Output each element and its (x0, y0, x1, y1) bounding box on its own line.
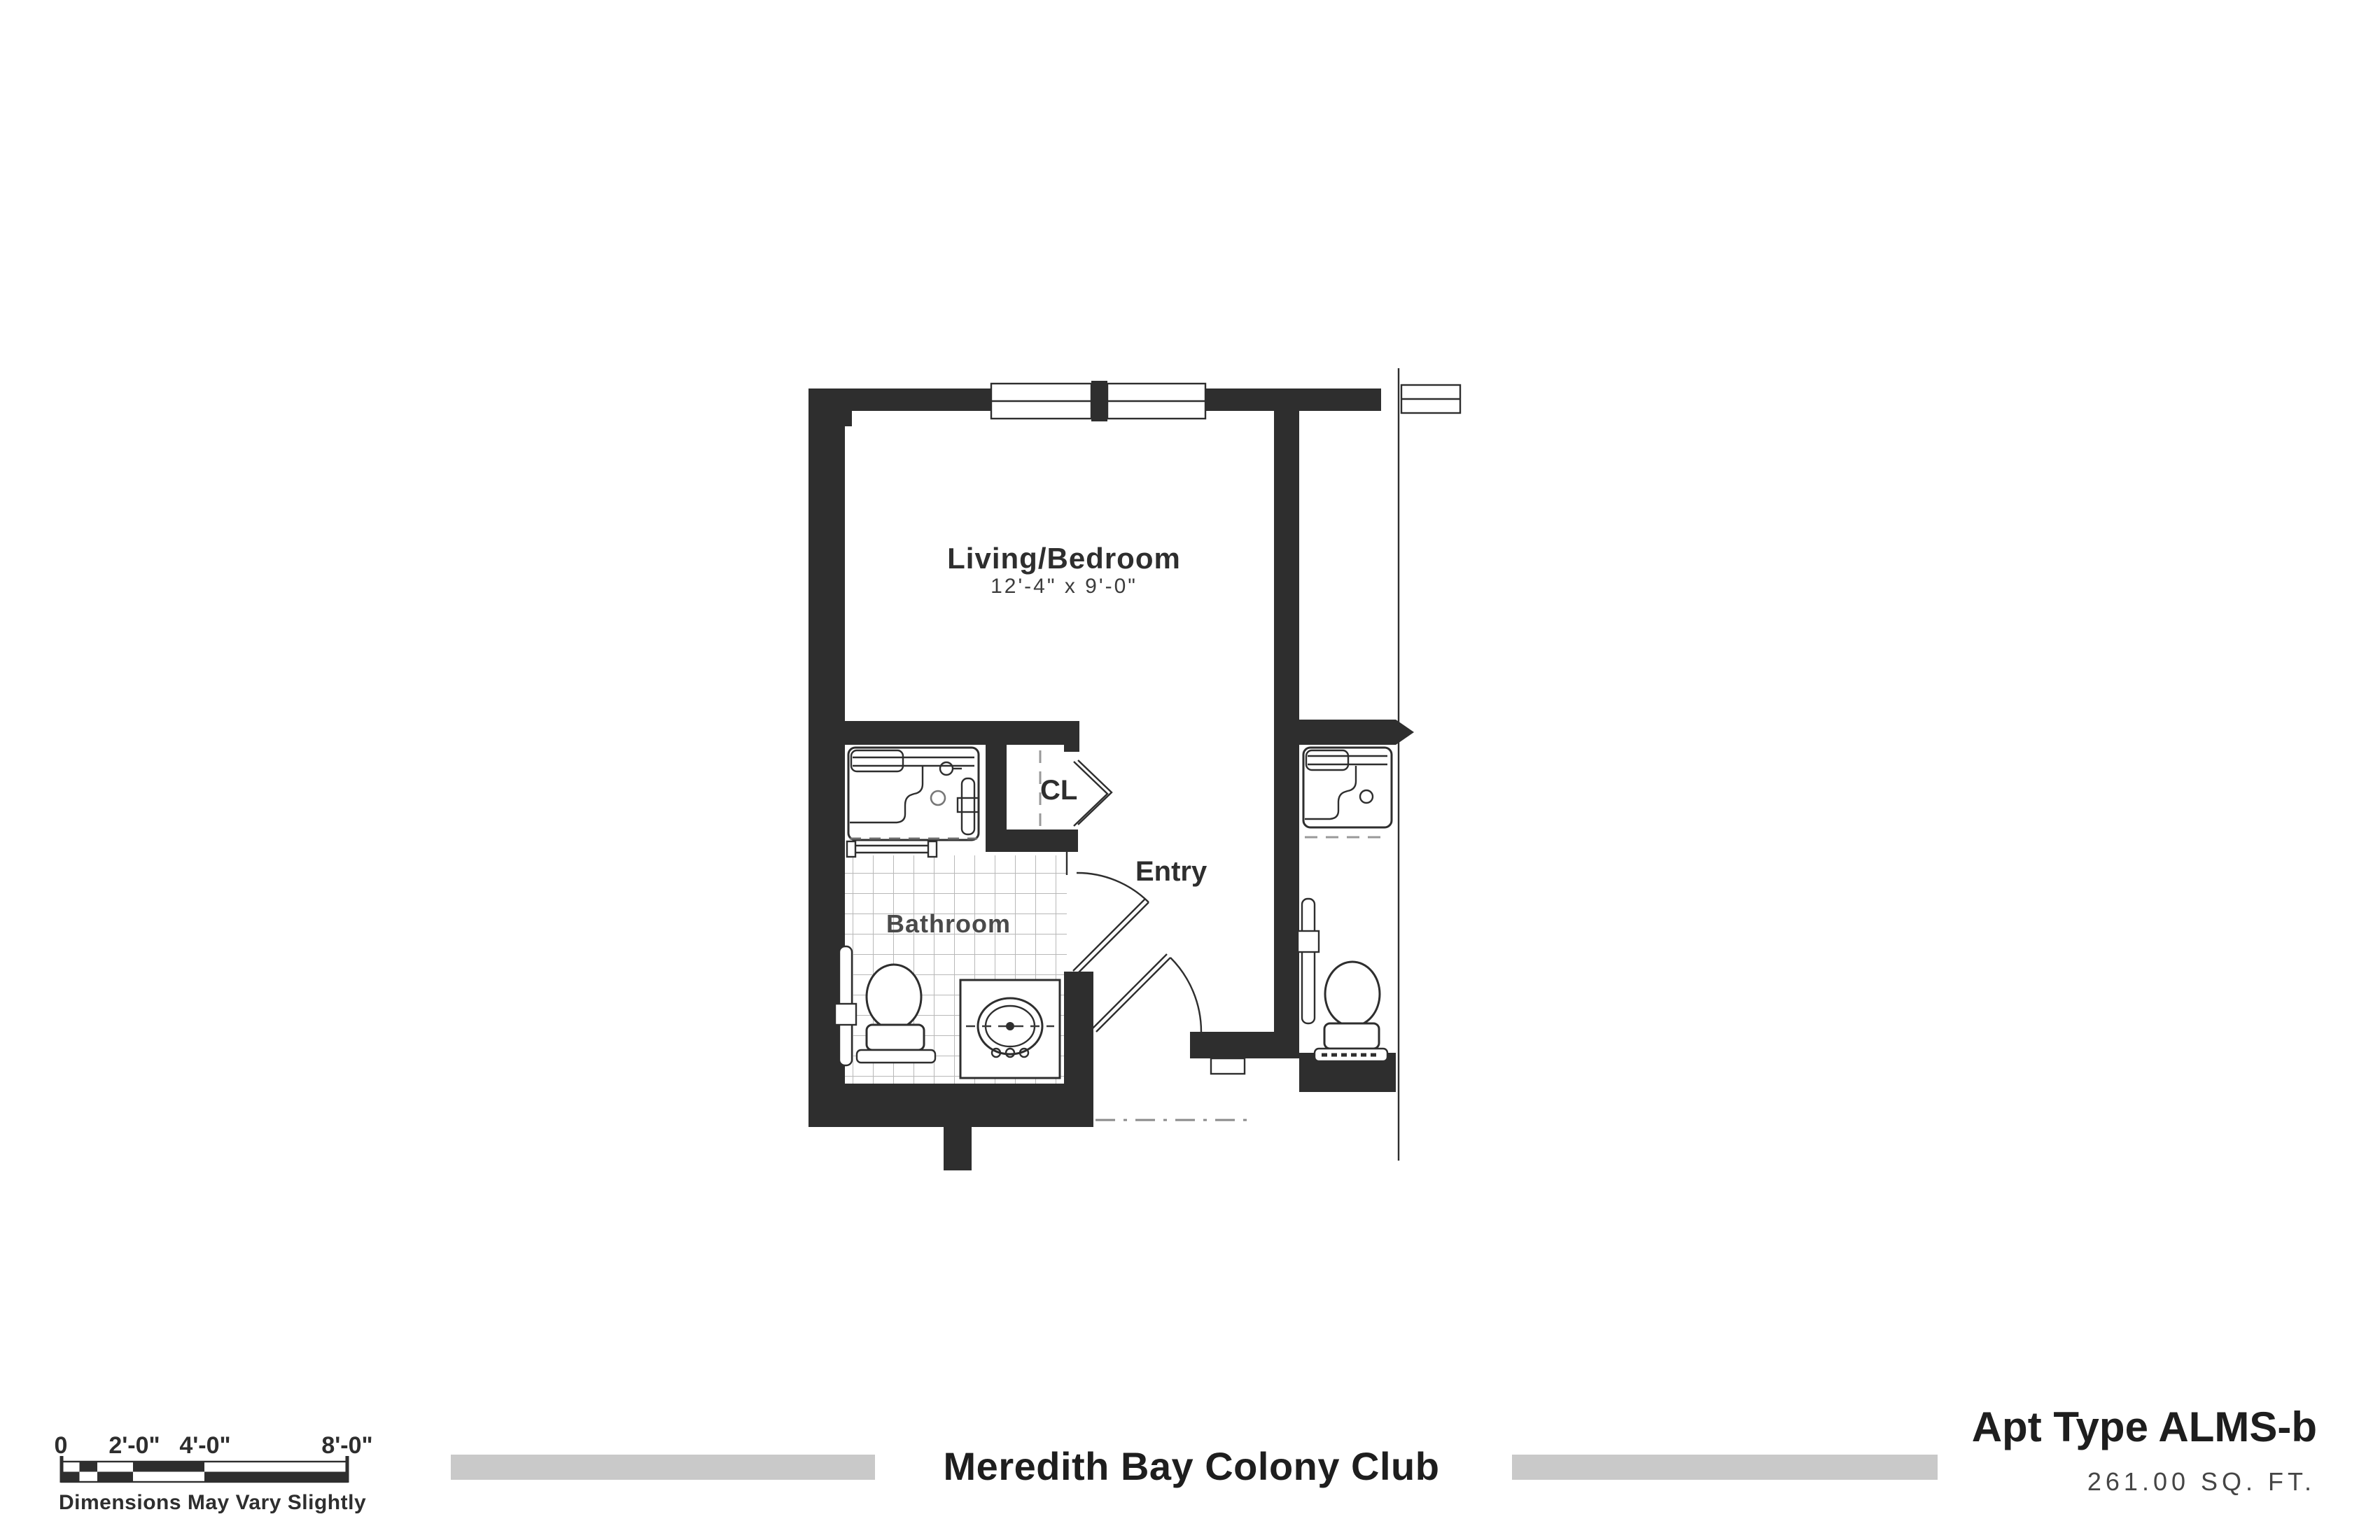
drawing-cut-line (1399, 368, 1460, 1161)
scale-bar: 0 2'-0" 4'-0" 8'-0" Dimensions May Vary … (28, 1421, 476, 1533)
floor-plan-drawing: Living/Bedroom 12'-4" x 9'-0" CL Entry B… (770, 350, 1470, 1190)
neighbor-grab-bar-icon (1298, 899, 1319, 1023)
living-room-dimensions: 12'-4" x 9'-0" (990, 575, 1137, 598)
neighbor-shower-icon (1303, 748, 1392, 837)
scale-label-2ft: 2'-0" (108, 1432, 160, 1459)
entry-threshold (1211, 1058, 1245, 1074)
shower-icon (847, 748, 979, 857)
vanity-sink-icon (960, 980, 1060, 1078)
divider-bar-left (451, 1455, 875, 1480)
closet-bifold-door-icon (1074, 760, 1112, 826)
apt-area-text: 261.00 SQ. FT. (1826, 1467, 2316, 1497)
floor-plan-sheet: Living/Bedroom 12'-4" x 9'-0" CL Entry B… (0, 0, 2380, 1540)
neighbor-toilet-icon (1315, 962, 1387, 1061)
bathroom-label: Bathroom (886, 909, 1011, 938)
apt-type-title: Apt Type ALMS-b (1687, 1403, 2317, 1451)
scale-label-8ft: 8'-0" (321, 1432, 372, 1459)
scale-label-4ft: 4'-0" (179, 1432, 230, 1459)
project-title: Meredith Bay Colony Club (883, 1443, 1499, 1489)
scale-bar-graphic (62, 1456, 347, 1483)
scale-label-0: 0 (55, 1432, 68, 1459)
entry-label: Entry (1135, 856, 1207, 887)
closet-label: CL (1040, 775, 1077, 806)
living-room-label: Living/Bedroom (947, 542, 1181, 575)
dimensions-disclaimer: Dimensions May Vary Slightly (59, 1491, 366, 1514)
bathroom-door-icon (1073, 873, 1149, 974)
